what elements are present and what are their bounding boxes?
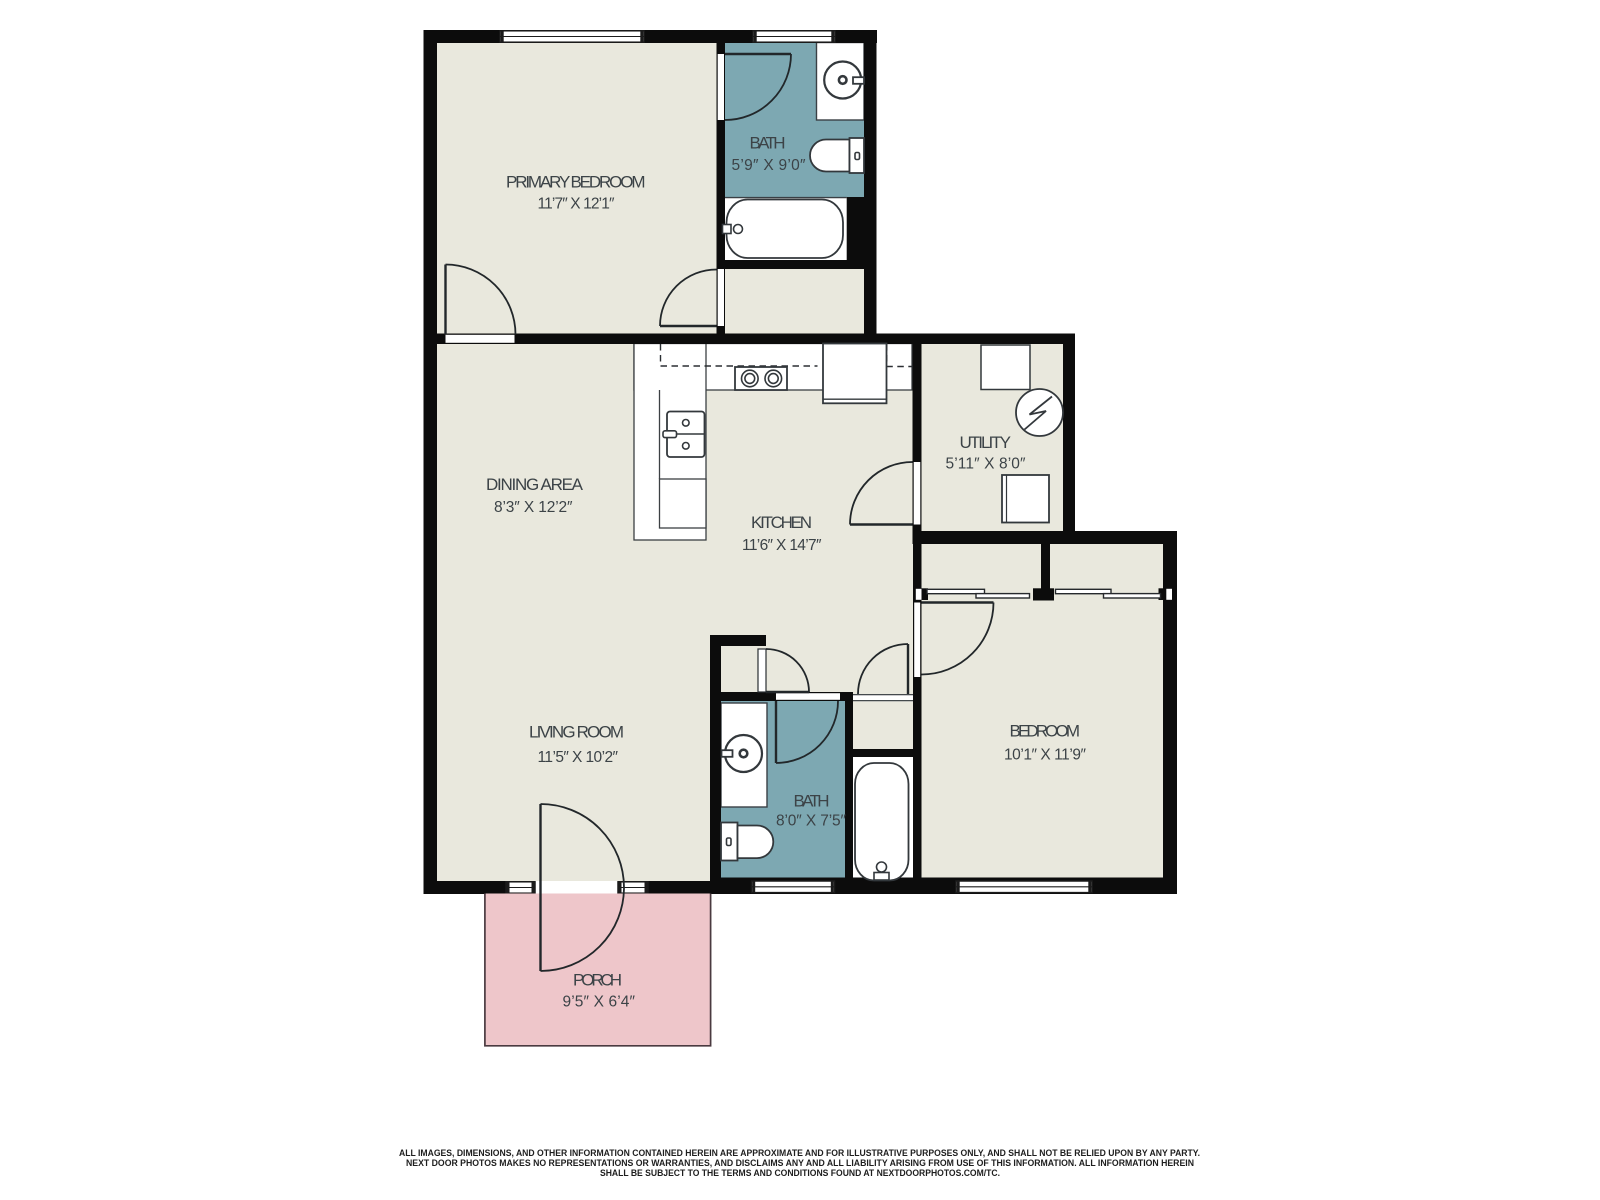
svg-text:PORCH: PORCH — [573, 971, 623, 990]
svg-text:BEDROOM: BEDROOM — [1010, 722, 1082, 741]
svg-text:9’5″ X 6’4″: 9’5″ X 6’4″ — [563, 994, 636, 1011]
svg-text:8’0″ X 7’5″: 8’0″ X 7’5″ — [776, 813, 847, 830]
svg-text:5’11″ X 8’0″: 5’11″ X 8’0″ — [946, 456, 1027, 473]
svg-text:PRIMARY BEDROOM: PRIMARY BEDROOM — [506, 173, 647, 192]
svg-text:11’6″ X 14’7″: 11’6″ X 14’7″ — [742, 537, 822, 554]
svg-text:KITCHEN: KITCHEN — [751, 513, 813, 532]
svg-text:SHALL BE SUBJECT TO THE TERMS: SHALL BE SUBJECT TO THE TERMS AND CONDIT… — [600, 1168, 1000, 1179]
svg-text:UTILITY: UTILITY — [960, 433, 1013, 452]
svg-text:5’9″ X 9’0″: 5’9″ X 9’0″ — [732, 157, 807, 174]
svg-text:BATH: BATH — [794, 792, 831, 811]
svg-text:11’7″ X 12’1″: 11’7″ X 12’1″ — [538, 196, 616, 213]
svg-text:DINING AREA: DINING AREA — [486, 475, 584, 494]
svg-text:10’1″ X 11’9″: 10’1″ X 11’9″ — [1004, 747, 1087, 764]
svg-text:11’5″ X 10’2″: 11’5″ X 10’2″ — [538, 749, 619, 766]
svg-text:BATH: BATH — [750, 134, 787, 153]
svg-text:8’3″ X 12’2″: 8’3″ X 12’2″ — [494, 499, 573, 516]
svg-text:LIVING ROOM: LIVING ROOM — [529, 723, 625, 742]
